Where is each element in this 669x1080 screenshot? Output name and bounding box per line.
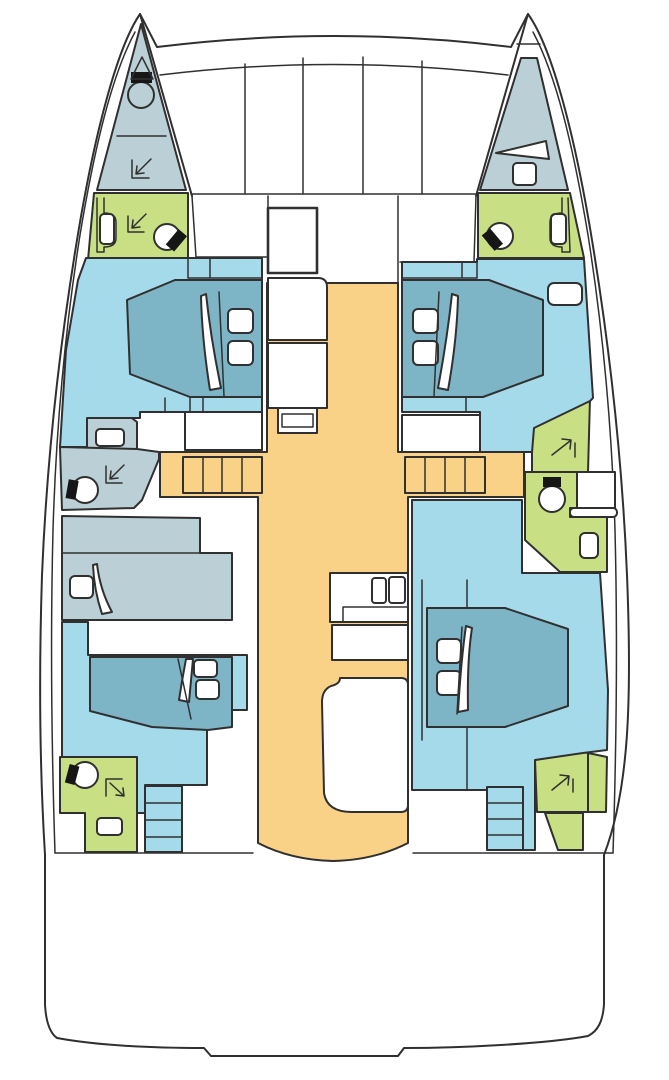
starboard-mid-counter xyxy=(570,508,617,517)
windlass-drum-icon xyxy=(128,82,154,108)
toilet-icon xyxy=(539,486,565,512)
galley-lower-unit xyxy=(332,625,408,660)
pillow xyxy=(228,309,253,333)
starboard-aft-bed xyxy=(427,608,568,727)
port-dresser xyxy=(185,412,262,450)
pillow xyxy=(413,309,438,333)
foredeck-hatch-box xyxy=(268,208,317,273)
salon-unit-port-1 xyxy=(268,278,327,340)
galley-sink-icon xyxy=(372,578,386,603)
galley-sink-icon xyxy=(389,577,405,603)
sink-icon xyxy=(580,533,598,558)
plan-root xyxy=(40,14,629,1056)
pillow xyxy=(70,576,93,598)
sink-icon xyxy=(97,818,122,835)
sink-icon xyxy=(96,429,124,446)
port-aft-steps xyxy=(145,786,182,852)
salon-island xyxy=(322,678,408,812)
toilet-tank-icon xyxy=(543,477,561,487)
starboard-aft-shower-locker xyxy=(588,753,607,812)
catamaran-deck-plan: Catamaran yacht deck plan xyxy=(0,0,669,1080)
pillow xyxy=(228,341,253,365)
starboard-dresser xyxy=(402,415,480,452)
pillow xyxy=(437,639,461,663)
floorplan-canvas: Catamaran yacht deck plan xyxy=(0,0,669,1080)
port-forward-bed xyxy=(127,280,262,397)
sink-icon xyxy=(100,214,114,244)
pillow xyxy=(194,660,217,677)
starboard-nightstand xyxy=(548,283,582,305)
starboard-forward-bed xyxy=(402,280,543,397)
pillow xyxy=(437,671,461,695)
salon-unit-port-tab xyxy=(278,408,317,433)
pillow xyxy=(196,680,219,699)
starboard-mid-head-floor xyxy=(577,472,615,508)
sink-icon xyxy=(551,214,566,244)
pillow xyxy=(413,341,438,365)
starboard-bow-hatch xyxy=(513,163,536,185)
salon-unit-port-2 xyxy=(268,343,327,408)
